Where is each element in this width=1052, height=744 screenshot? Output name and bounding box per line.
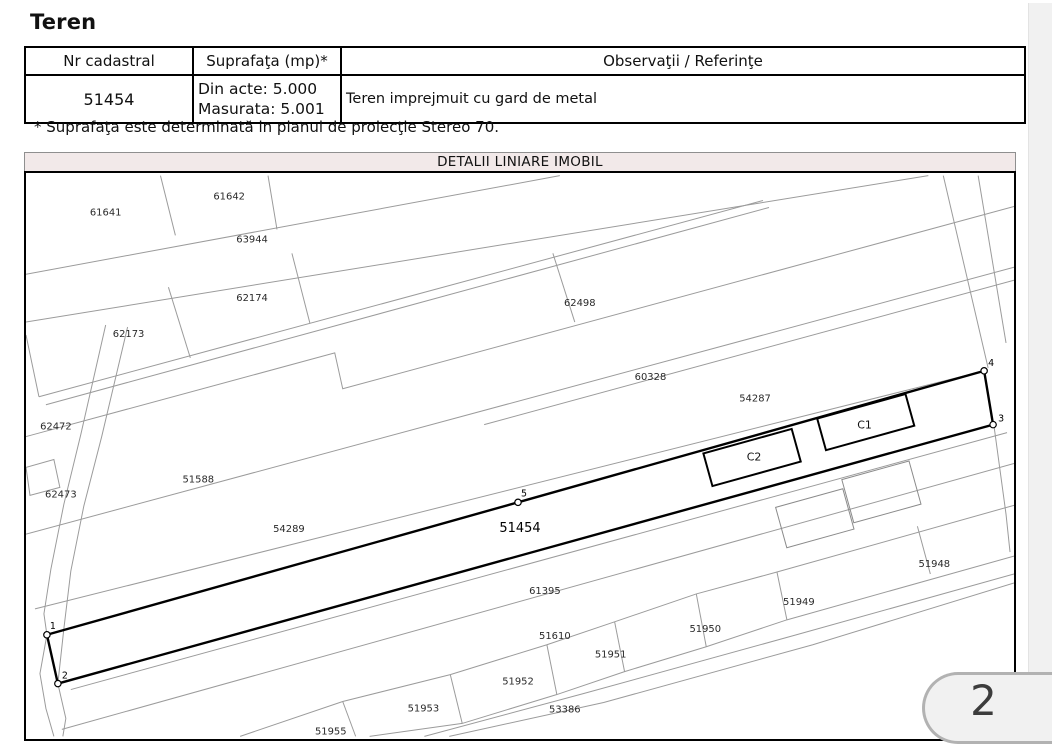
footnote: * Suprafaţa este determinată in planul d…: [34, 118, 499, 136]
vertex-label-4: 4: [988, 358, 994, 369]
page-number-badge[interactable]: 2: [922, 672, 1052, 744]
parcel-label-51588: 51588: [182, 474, 214, 485]
document-page: { "title": "Teren", "table": { "headers"…: [0, 0, 1052, 735]
parcel-label-51953: 51953: [408, 703, 440, 714]
parcel-label-62173: 62173: [113, 329, 145, 340]
table-header-row: Nr cadastral Suprafaţa (mp)* Observaţii …: [25, 47, 1025, 75]
parcel-label-51949: 51949: [783, 597, 815, 608]
parcel-label-54287: 54287: [739, 394, 771, 405]
page-number: 2: [970, 675, 997, 728]
parcel-label-51955: 51955: [315, 726, 347, 737]
map-section-title: DETALII LINIARE IMOBIL: [24, 152, 1016, 172]
vertex-marker-4: [981, 368, 987, 374]
parcel-label-53386: 53386: [549, 704, 581, 715]
vertex-marker-3: [990, 421, 996, 427]
suprafata-din-acte: Din acte: 5.000: [198, 79, 336, 99]
vertex-marker-5: [515, 499, 521, 505]
cadastral-map-svg: 6164161642639446217462173624986032854287…: [26, 173, 1014, 739]
parcel-label-62174: 62174: [236, 293, 268, 304]
header-suprafata: Suprafaţa (mp)*: [193, 47, 341, 75]
parcel-label-c1: C1: [857, 419, 872, 432]
parcel-label-61395: 61395: [529, 586, 561, 597]
parcel-label-61642: 61642: [213, 192, 245, 203]
parcel-label-c2: C2: [747, 450, 762, 463]
cell-nr-cadastral: 51454: [25, 75, 193, 123]
vertex-label-2: 2: [62, 671, 68, 682]
vertex-marker-1: [44, 632, 50, 638]
parcel-label-51454: 51454: [499, 521, 540, 536]
parcel-label-51951: 51951: [595, 650, 627, 661]
vertex-marker-2: [55, 680, 61, 686]
vertex-label-1: 1: [50, 621, 56, 632]
vertex-label-3: 3: [998, 414, 1004, 425]
parcel-label-51950: 51950: [689, 624, 721, 635]
right-gutter: [1028, 3, 1052, 735]
vertex-label-5: 5: [521, 488, 527, 499]
cell-observatii: Teren imprejmuit cu gard de metal: [341, 75, 1025, 123]
cell-suprafata: Din acte: 5.000 Masurata: 5.001: [193, 75, 341, 123]
cadastral-table: Nr cadastral Suprafaţa (mp)* Observaţii …: [24, 46, 1026, 124]
parcel-label-60328: 60328: [635, 372, 667, 383]
parcel-label-62498: 62498: [564, 298, 596, 309]
cadastral-map: 6164161642639446217462173624986032854287…: [24, 171, 1016, 741]
header-nr-cadastral: Nr cadastral: [25, 47, 193, 75]
parcel-label-63944: 63944: [236, 234, 268, 245]
parcel-label-51610: 51610: [539, 631, 571, 642]
parcel-label-61641: 61641: [90, 207, 122, 218]
page-title: Teren: [30, 10, 96, 34]
parcel-label-51952: 51952: [502, 677, 534, 688]
unlabeled-buildings: [776, 461, 921, 548]
parcel-label-54289: 54289: [273, 524, 305, 535]
table-row: 51454 Din acte: 5.000 Masurata: 5.001 Te…: [25, 75, 1025, 123]
parcel-label-51948: 51948: [919, 559, 951, 570]
parcel-label-62473: 62473: [45, 489, 77, 500]
parcel-label-62472: 62472: [40, 422, 72, 433]
header-observatii: Observaţii / Referinţe: [341, 47, 1025, 75]
suprafata-masurata: Masurata: 5.001: [198, 99, 336, 119]
